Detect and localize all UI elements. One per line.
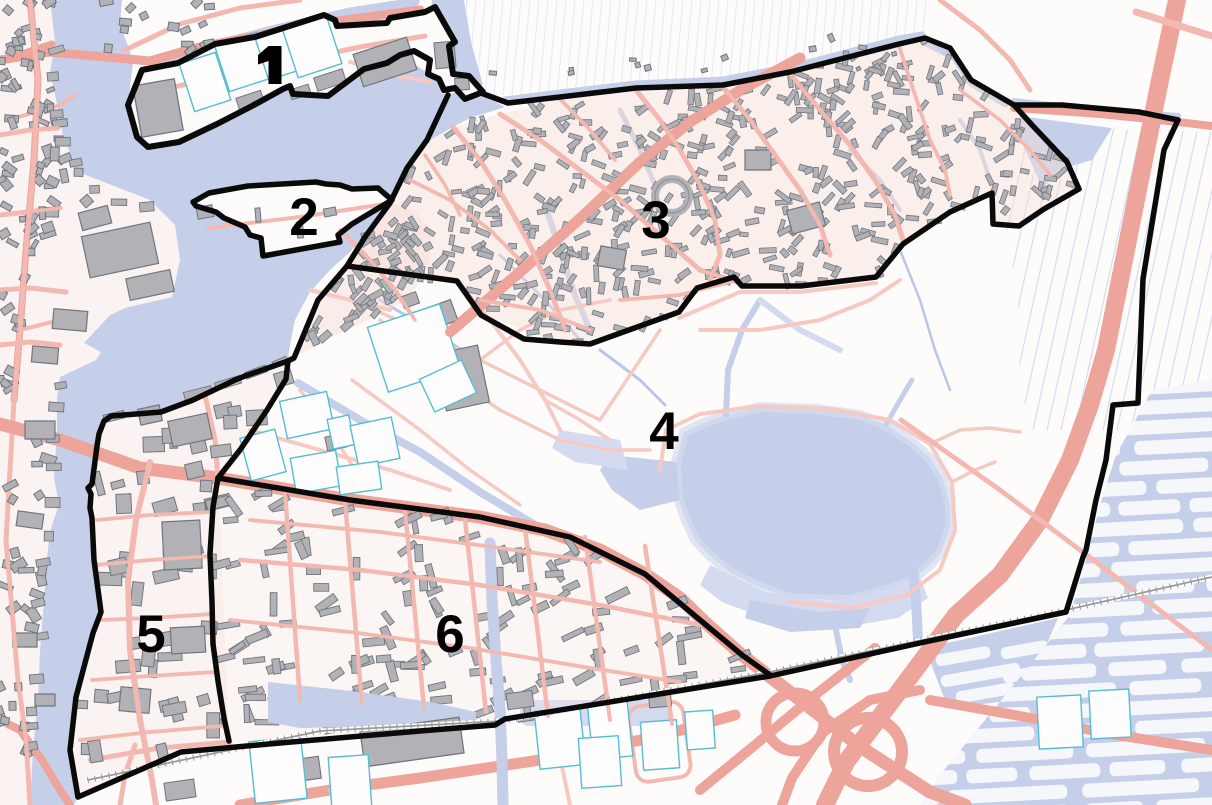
svg-text:6: 6 bbox=[435, 605, 464, 664]
svg-text:4: 4 bbox=[649, 402, 679, 461]
svg-text:2: 2 bbox=[289, 188, 318, 247]
svg-text:5: 5 bbox=[136, 605, 165, 664]
svg-text:3: 3 bbox=[641, 191, 670, 250]
